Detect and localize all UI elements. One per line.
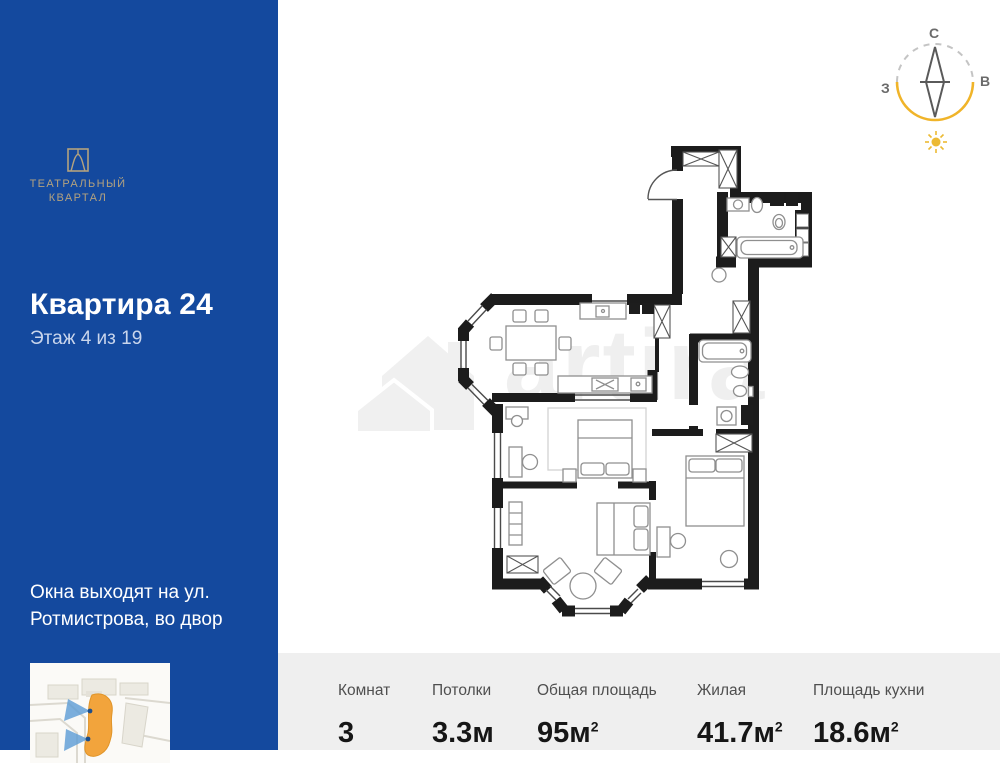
stat-value: 3 (338, 717, 354, 749)
brand-name-line1: ТЕАТРАЛЬНЫЙ (28, 178, 128, 192)
kitchen-wardrobe (654, 305, 670, 338)
compass: С З В (868, 16, 1000, 163)
stat-label: Общая площадь (537, 682, 657, 700)
stat-label: Потолки (432, 682, 491, 700)
theater-curtain-icon (28, 146, 128, 174)
dining-table-set (490, 310, 571, 375)
kitchen-counter-top (580, 303, 626, 319)
sidebar: ТЕАТРАЛЬНЫЙ КВАРТАЛ Квартира 24 Этаж 4 и… (0, 0, 278, 750)
stat-value: 41.7м (697, 717, 775, 749)
apartment-title: Квартира 24 (30, 288, 213, 322)
stat-label: Площадь кухни (813, 682, 924, 700)
floor-plan (440, 128, 825, 645)
brand-name-line2: КВАРТАЛ (28, 192, 128, 206)
stats-bar: Комнат 3 Потолки 3.3м Общая площадь 95м2… (278, 653, 1000, 750)
washing-machine (721, 237, 736, 257)
stat-label: Комнат (338, 682, 390, 700)
entry-door-arc (648, 170, 677, 200)
compass-west-label: З (881, 80, 890, 96)
bathroom1-fixtures (727, 198, 803, 259)
entry-wardrobe-2 (719, 150, 737, 188)
stat-value: 18.6м (813, 717, 891, 749)
floor-info: Этаж 4 из 19 (30, 328, 142, 350)
stat-value: 3.3м (432, 717, 494, 749)
entry-wardrobe (683, 152, 719, 166)
kitchen-counter-bottom (558, 376, 652, 393)
compass-east-label: В (980, 73, 990, 89)
bedroom3-furniture (657, 456, 744, 568)
compass-north-label: С (929, 25, 939, 41)
bedroom1-furniture (506, 407, 646, 482)
windows-note: Окна выходят на ул. Ротмистрова, во двор (30, 580, 248, 634)
brand-logo: ТЕАТРАЛЬНЫЙ КВАРТАЛ (28, 146, 128, 206)
sun-icon (925, 131, 947, 153)
map-thumbnail[interactable] (30, 663, 170, 763)
ceiling-light (712, 268, 726, 282)
stat-label: Жилая (697, 682, 746, 700)
hall-wardrobe (733, 301, 750, 333)
bedroom3-wardrobe (716, 434, 752, 452)
stat-value: 95м (537, 717, 591, 749)
bedroom2-wardrobe (507, 556, 538, 573)
